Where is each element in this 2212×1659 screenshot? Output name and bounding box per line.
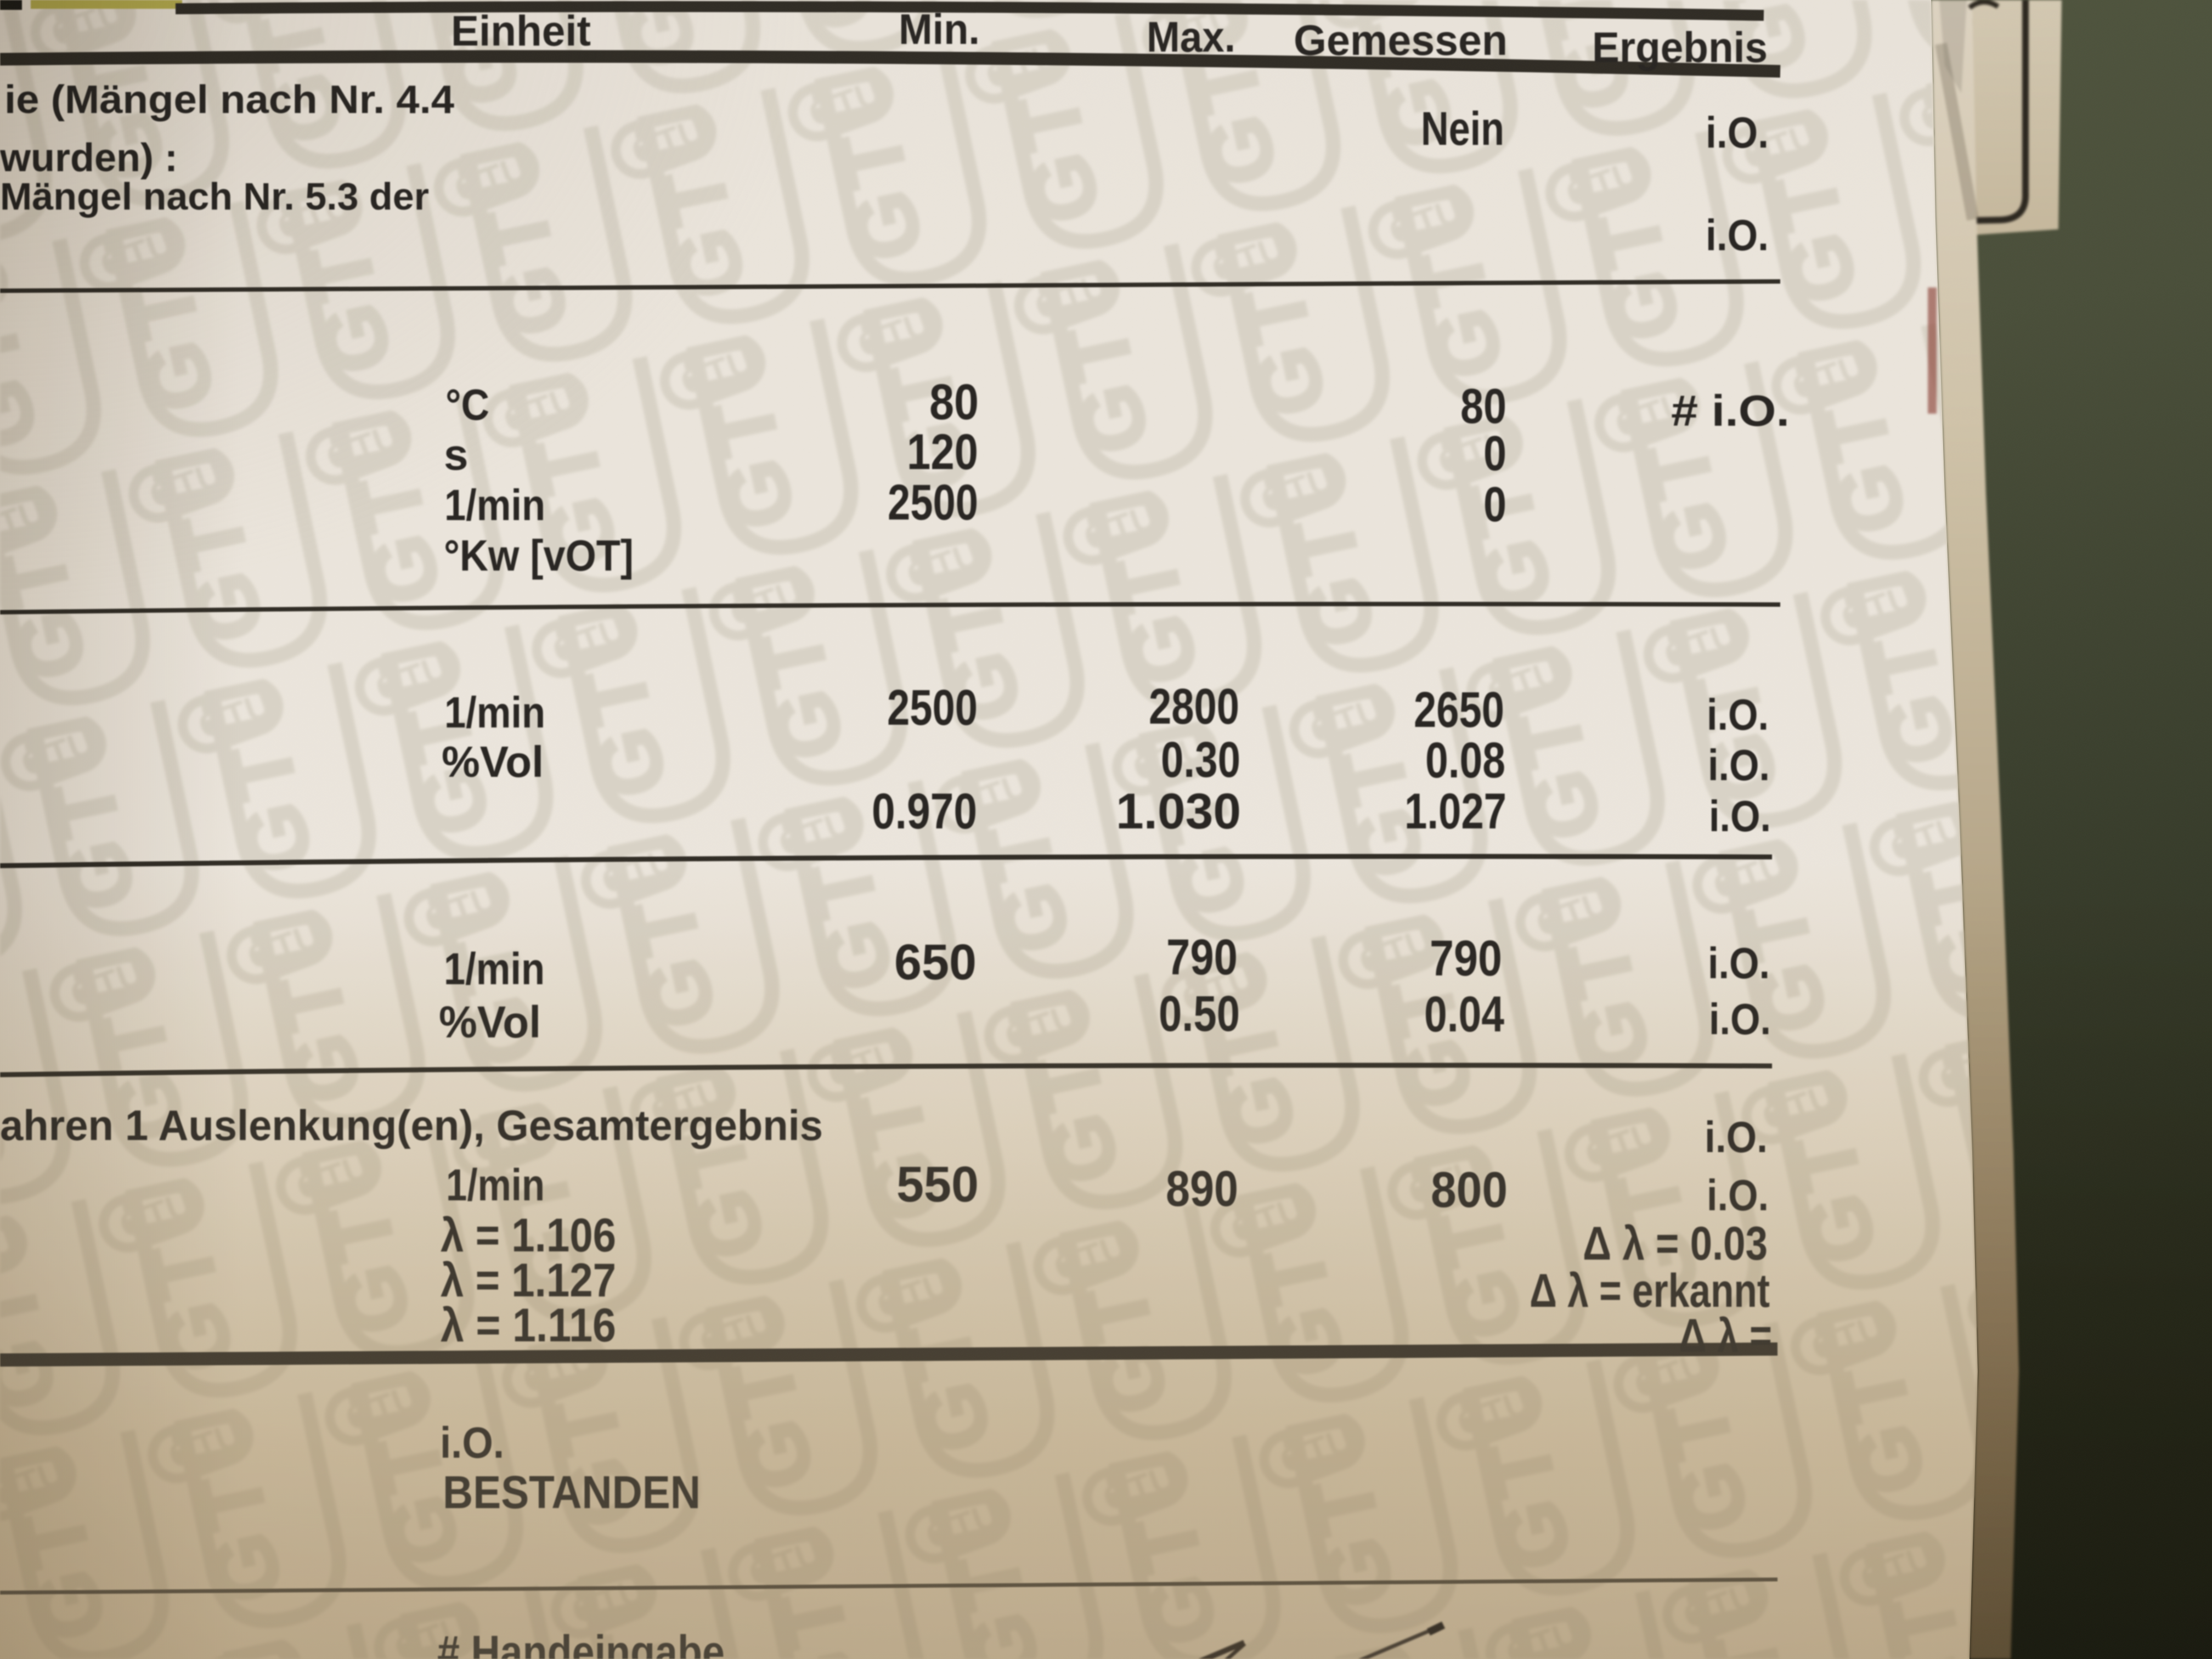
svg-text:i.O.: i.O. (1709, 995, 1771, 1043)
svg-text:1/min: 1/min (444, 481, 545, 529)
svg-text:# Handeingabe: # Handeingabe (437, 1626, 725, 1659)
svg-text:i.O.: i.O. (1707, 1171, 1769, 1220)
svg-text:1/min: 1/min (444, 944, 545, 994)
svg-text:i.O.: i.O. (1706, 211, 1769, 259)
svg-text:80: 80 (929, 374, 979, 430)
svg-text:Mängel nach Nr. 5.3 der: Mängel nach Nr. 5.3 der (0, 175, 429, 218)
svg-text:Min.: Min. (899, 5, 980, 53)
svg-text:ahren 1 Auslenkung(en), Gesamt: ahren 1 Auslenkung(en), Gesamtergebnis (0, 1101, 823, 1149)
svg-text:2500: 2500 (888, 475, 978, 531)
svg-text:Max.: Max. (1147, 13, 1235, 61)
svg-text:wurden) :: wurden) : (0, 136, 178, 180)
svg-text:Δ λ =: Δ λ = (1679, 1310, 1772, 1362)
svg-text:°Kw [vOT]: °Kw [vOT] (444, 531, 634, 580)
svg-text:Einheit: Einheit (451, 7, 591, 55)
svg-text:i.O.: i.O. (1705, 1113, 1768, 1161)
svg-text:650: 650 (894, 934, 977, 990)
svg-text:1/min: 1/min (444, 688, 545, 737)
svg-text:1.030: 1.030 (1116, 783, 1241, 839)
svg-text:%Vol: %Vol (442, 737, 544, 786)
svg-text:890: 890 (1166, 1161, 1238, 1217)
svg-text:i.O.: i.O. (1706, 108, 1769, 157)
svg-text:120: 120 (907, 424, 978, 480)
svg-text:2500: 2500 (887, 680, 978, 736)
svg-text:s: s (444, 430, 469, 479)
svg-text:0: 0 (1483, 426, 1506, 481)
svg-text:0.50: 0.50 (1159, 986, 1240, 1042)
svg-text:800: 800 (1431, 1162, 1508, 1218)
svg-text:0.04: 0.04 (1424, 986, 1504, 1042)
svg-text:2650: 2650 (1414, 682, 1504, 738)
svg-text:1.027: 1.027 (1404, 783, 1506, 839)
svg-text:2800: 2800 (1149, 679, 1239, 735)
svg-text:i.O.: i.O. (1709, 792, 1771, 840)
svg-text:0.08: 0.08 (1425, 732, 1505, 788)
svg-text:i.O.: i.O. (1708, 741, 1770, 789)
svg-text:i.O.: i.O. (440, 1418, 504, 1467)
svg-text:0.30: 0.30 (1161, 732, 1240, 788)
svg-text:Nein: Nein (1421, 103, 1504, 155)
svg-text:550: 550 (896, 1156, 979, 1212)
svg-text:ie (Mängel nach Nr. 4.4: ie (Mängel nach Nr. 4.4 (4, 78, 454, 122)
svg-text:790: 790 (1430, 930, 1502, 986)
svg-text:0: 0 (1483, 477, 1506, 532)
svg-text:°C: °C (445, 380, 489, 429)
svg-text:790: 790 (1166, 929, 1238, 985)
svg-text:λ = 1.116: λ = 1.116 (441, 1299, 616, 1352)
svg-text:80: 80 (1460, 379, 1506, 434)
svg-text:BESTANDEN: BESTANDEN (443, 1466, 701, 1518)
svg-text:1/min: 1/min (446, 1160, 545, 1210)
svg-text:Ergebnis: Ergebnis (1592, 23, 1768, 71)
svg-text:Δ λ = 0.03: Δ λ = 0.03 (1583, 1217, 1768, 1270)
svg-text:i.O.: i.O. (1707, 690, 1769, 739)
svg-text:0.970: 0.970 (872, 783, 977, 839)
svg-text:%Vol: %Vol (439, 997, 541, 1047)
svg-text:# i.O.: # i.O. (1671, 386, 1790, 435)
svg-text:i.O.: i.O. (1708, 939, 1770, 988)
svg-text:Gemessen: Gemessen (1294, 16, 1508, 64)
